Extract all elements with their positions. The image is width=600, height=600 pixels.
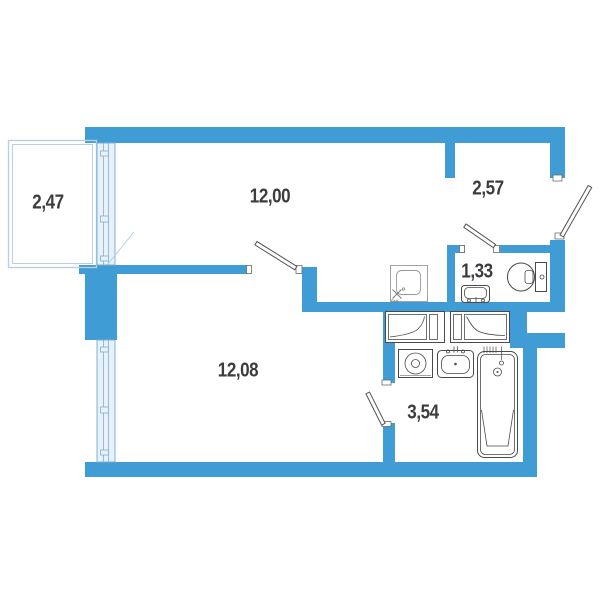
window-lower (97, 340, 115, 462)
door-leaf-bathroom (366, 392, 385, 425)
room-label-living: 12,00 (250, 186, 290, 209)
ventilation-shaft: ВтК (391, 266, 428, 304)
room-label-bedroom: 12,08 (218, 360, 258, 383)
door-frame-marker (553, 175, 562, 181)
room-label-bathroom: 3,54 (407, 402, 438, 425)
door-frame-marker (382, 380, 391, 385)
door-leaf-bedroom (255, 242, 297, 270)
room-label-balcony: 2,47 (32, 192, 63, 215)
plan-linework: ВтК (0, 0, 600, 600)
floor-plan: ВтК (0, 0, 600, 600)
toilet-icon (508, 263, 547, 292)
door-leaf-toilet (464, 224, 496, 248)
wash-basin-icon (462, 286, 490, 304)
bathroom-basin-icon (438, 347, 474, 378)
door-leaf-entrance (560, 185, 592, 236)
room-label-toilet: 1,33 (461, 261, 492, 284)
door-frame-marker (460, 246, 465, 253)
wardrobe-right-icon (451, 312, 510, 343)
window-upper (97, 143, 115, 265)
wardrobe-left-icon (386, 312, 445, 343)
door-frame-marker (247, 266, 252, 274)
bathtub-icon (478, 347, 518, 458)
washing-machine-icon (399, 350, 433, 378)
vent-shaft-label: ВтК (391, 299, 399, 304)
room-label-hallway: 2,57 (472, 178, 503, 201)
